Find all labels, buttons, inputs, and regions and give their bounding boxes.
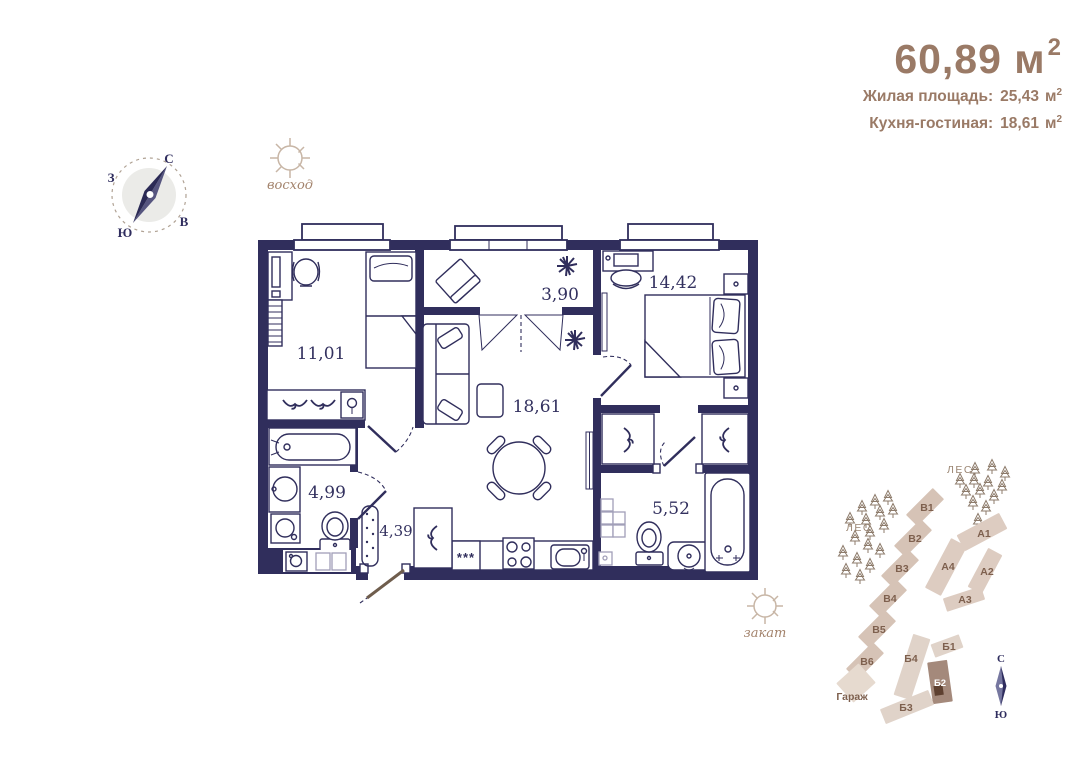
laundry-niche: [283, 550, 351, 572]
tree-icon: [998, 480, 1007, 495]
room-bedroom-1: 11,01: [267, 252, 416, 420]
garage-label: Гараж: [836, 691, 868, 703]
tree-icon: [856, 570, 865, 585]
room-label-hallway: 4,39: [379, 522, 412, 540]
tree-icon: [871, 495, 880, 510]
shoe-mat-icon: [362, 506, 378, 566]
closet-right-icon: [702, 414, 748, 464]
radiator-icon: [602, 293, 607, 351]
cabinet-icon: [586, 432, 593, 489]
door-ensuite: [653, 437, 703, 473]
total-area: 60,89 м2: [863, 26, 1062, 81]
tree-icon: [884, 491, 893, 506]
tree-icon: [982, 501, 991, 516]
building-v5: В5: [858, 610, 896, 648]
room-label-kitchen-living: 18,61: [513, 397, 562, 417]
svg-text:В4: В4: [883, 593, 897, 605]
chair-icon: [611, 270, 641, 289]
door-bedroom-1: [368, 426, 413, 452]
windows: [294, 224, 719, 250]
nightstand-icon: [724, 378, 748, 398]
room-label-bathroom: 4,99: [308, 483, 346, 503]
svg-text:В3: В3: [895, 563, 909, 575]
tree-icon: [853, 553, 862, 568]
tree-icon: [842, 564, 851, 579]
living-area-stat: Жилая площадь:25,43м2: [863, 81, 1062, 108]
tree-icon: [839, 546, 848, 561]
sofa-icon: [423, 324, 469, 424]
sunrise-label: восход: [267, 178, 313, 193]
building-b1: Б1: [931, 634, 964, 657]
svg-text:А2: А2: [980, 566, 994, 578]
bathtub-icon: [705, 473, 750, 572]
door-bedroom-2: [601, 356, 631, 396]
compass-north: С: [164, 151, 173, 166]
building-a2: А2: [968, 548, 1003, 594]
shelf-icon: [268, 300, 282, 346]
svg-text:Б2: Б2: [934, 678, 946, 689]
tree-icon: [876, 544, 885, 559]
sunset-sun: закат: [744, 588, 787, 641]
window-bedroom-2: [620, 224, 719, 250]
sunset-label: закат: [744, 626, 787, 641]
living-area-label: Жилая площадь:: [863, 88, 993, 105]
svg-text:В1: В1: [920, 502, 934, 514]
site-compass-south: Ю: [995, 709, 1007, 721]
plant-icon: [557, 256, 577, 276]
area-header: 60,89 м2 Жилая площадь:25,43м2 Кухня-гос…: [863, 26, 1062, 135]
tree-icon: [858, 501, 867, 516]
building-v4: В4: [869, 579, 907, 617]
washer-icon: [271, 514, 300, 543]
wardrobe-icon: [267, 390, 365, 420]
tree-icon: [969, 496, 978, 511]
tree-icon: [889, 504, 898, 519]
tree-icon: [864, 539, 873, 554]
site-compass-north: С: [997, 653, 1005, 665]
svg-text:В5: В5: [872, 624, 886, 636]
vanity-sink-icon: [668, 542, 710, 570]
lounge-chair-icon: [435, 258, 480, 303]
floor-plan: 11,01 3,90: [258, 224, 758, 603]
room-label-ensuite: 5,52: [652, 499, 690, 519]
plant-icon: [565, 330, 585, 350]
dining-table-icon: [485, 434, 552, 501]
tree-icon: [962, 485, 971, 500]
svg-text:А1: А1: [977, 528, 991, 540]
room-hallway: 4,39: [362, 506, 452, 568]
building-b4: Б4: [894, 634, 931, 700]
window-bedroom-1: [294, 224, 390, 250]
room-label-loggia: 3,90: [541, 285, 579, 305]
kitchen-counter: ***: [452, 538, 593, 570]
tree-icon: [876, 506, 885, 521]
side-table-icon: [477, 384, 503, 417]
kitchen-area-label: Кухня-гостиная:: [869, 115, 993, 132]
svg-text:Б1: Б1: [942, 641, 956, 653]
compass-south: Ю: [118, 225, 133, 240]
svg-text:Б4: Б4: [904, 653, 918, 665]
chair-icon: [293, 259, 320, 286]
stove-icon: [503, 538, 534, 569]
tree-icon: [988, 460, 997, 475]
sunrise-sun: восход: [267, 138, 313, 193]
compass-east: В: [180, 214, 189, 229]
freezer-stars: ***: [457, 550, 475, 565]
hall-wardrobe-icon: [414, 508, 452, 568]
compass-west: З: [108, 170, 115, 185]
site-compass: С Ю: [995, 653, 1007, 721]
building-v1: В1: [906, 488, 944, 526]
main-compass: С В Ю З: [108, 151, 189, 240]
bathtub-icon: [269, 428, 356, 465]
kitchen-area-stat: Кухня-гостиная:18,61м2: [863, 108, 1062, 135]
toilet-icon: [636, 522, 663, 565]
svg-text:А4: А4: [941, 561, 955, 573]
tree-icon: [880, 519, 889, 534]
closet-left-icon: [602, 414, 654, 464]
building-v2: В2: [894, 519, 932, 557]
toilet-icon: [320, 512, 350, 552]
building-v3: В3: [881, 549, 919, 587]
building-a4: А4: [925, 538, 967, 596]
svg-text:А3: А3: [958, 594, 972, 606]
room-label-bedroom-1: 11,01: [297, 344, 346, 364]
floor-plan-page: 60,89 м2 Жилая площадь:25,43м2 Кухня-гос…: [0, 0, 1088, 757]
site-plan: ЛЕС ЛЕС В1 В2 В3 В4 В5 В6 А1 А2 А3 А4 Б1…: [836, 460, 1009, 725]
building-a3: А3: [943, 586, 985, 612]
double-bed-icon: [645, 295, 745, 377]
room-label-bedroom-2: 14,42: [649, 273, 698, 293]
tree-icon: [984, 476, 993, 491]
nightstand-icon: [724, 274, 748, 294]
garage: Гараж: [836, 663, 876, 703]
room-ensuite-bathroom: 5,52: [599, 473, 750, 572]
entry-door: [360, 564, 410, 603]
tree-icon: [990, 490, 999, 505]
single-bed-icon: [366, 252, 416, 368]
sink-icon: [269, 467, 300, 512]
sink-icon: [551, 545, 589, 569]
room-loggia: 3,90: [435, 256, 579, 305]
tree-icon: [866, 559, 875, 574]
room-bedroom-2: 14,42: [602, 251, 748, 398]
svg-text:Б3: Б3: [899, 702, 913, 714]
shelving-icon: [599, 499, 625, 565]
loggia-french-doors: [479, 315, 563, 352]
svg-text:В6: В6: [860, 656, 874, 668]
window-loggia: [450, 226, 567, 250]
svg-text:В2: В2: [908, 533, 922, 545]
